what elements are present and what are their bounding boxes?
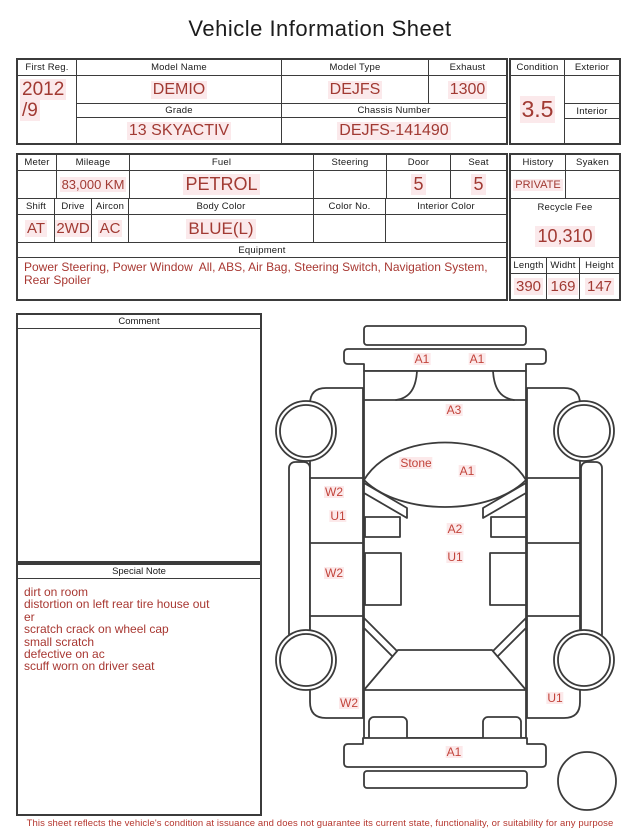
vehicle-information-sheet: Vehicle Information Sheet First Reg. 201…	[0, 0, 640, 835]
field-history: History PRIVATE	[511, 155, 566, 198]
left-sill	[289, 462, 310, 640]
mileage-label: Mileage	[57, 155, 129, 171]
field-equipment: Equipment Power Steering, Power Window A…	[18, 243, 506, 299]
recycle-fee-value: 10,310	[511, 215, 619, 257]
condition-value: 3.5	[511, 76, 564, 143]
model-name-value: DEMIO	[77, 76, 281, 103]
front-bumper	[344, 349, 546, 371]
shift-value: AT	[18, 215, 54, 242]
left-front-door-inner	[365, 517, 400, 537]
field-color-no: Color No.	[314, 199, 386, 242]
disclaimer-text: This sheet reflects the vehicle's condit…	[0, 818, 640, 829]
right-rear-door-inner	[490, 553, 526, 605]
field-meter: Meter	[18, 155, 57, 198]
field-fuel: Fuel PETROL	[130, 155, 314, 198]
body-color-value: BLUE(L)	[129, 215, 313, 242]
color-no-value	[314, 215, 385, 242]
chassis-number-value: DEJFS-141490	[282, 118, 506, 143]
rear-right-wheel	[554, 630, 614, 690]
exhaust-label: Exhaust	[429, 60, 506, 76]
seat-value: 5	[451, 171, 506, 198]
field-width: Widht 169	[547, 258, 580, 299]
right-front-door-inner	[491, 517, 526, 537]
model-info-row1: Model Name DEMIO Model Type DEJFS Exhaus…	[77, 60, 506, 103]
right-sill	[581, 462, 602, 640]
page-title: Vehicle Information Sheet	[0, 16, 640, 42]
width-label: Widht	[547, 258, 579, 274]
chassis-number-label: Chassis Number	[282, 104, 506, 118]
damage-label: A2	[447, 523, 464, 535]
comment-label: Comment	[18, 315, 260, 329]
height-label: Height	[580, 258, 619, 274]
model-type-value: DEJFS	[282, 76, 428, 103]
special-note-label: Special Note	[18, 565, 260, 579]
field-door: Door 5	[387, 155, 451, 198]
field-shift: Shift AT	[18, 199, 55, 242]
dimensions-row: Length 390 Widht 169 Height 147	[511, 258, 619, 299]
field-syaken: Syaken	[566, 155, 619, 198]
damage-label: A1	[469, 353, 486, 365]
model-info-main: Model Name DEMIO Model Type DEJFS Exhaus…	[77, 60, 506, 143]
model-name-label: Model Name	[77, 60, 281, 76]
damage-label: W2	[324, 486, 344, 498]
grade-value: 13 SKYACTIV	[77, 118, 281, 143]
comment-box: Comment	[16, 313, 262, 563]
interior-value	[565, 119, 619, 143]
left-rear-door-inner	[365, 553, 401, 605]
field-recycle-fee: Recycle Fee 10,310	[511, 199, 619, 258]
first-reg-year: 2012	[20, 79, 66, 100]
history-value: PRIVATE	[511, 171, 565, 198]
damage-label: A3	[446, 404, 463, 416]
grade-label: Grade	[77, 104, 281, 118]
history-fee-table: History PRIVATE Syaken Recycle Fee 10,31…	[509, 153, 621, 301]
exterior-value	[565, 76, 619, 103]
note-line: scuff worn on driver seat	[24, 660, 256, 672]
front-right-wheel	[554, 401, 614, 461]
exhaust-value: 1300	[429, 76, 506, 103]
damage-label: A1	[459, 465, 476, 477]
door-value: 5	[387, 171, 450, 198]
field-seat: Seat 5	[451, 155, 506, 198]
field-length: Length 390	[511, 258, 547, 299]
aircon-value: AC	[92, 215, 128, 242]
fuel-value: PETROL	[130, 171, 313, 198]
field-steering: Steering	[314, 155, 387, 198]
note-line: distortion on left rear tire house out	[24, 598, 256, 610]
damage-label: U1	[446, 551, 463, 563]
damage-label: A1	[414, 353, 431, 365]
damage-label: U1	[546, 692, 563, 704]
syaken-label: Syaken	[566, 155, 619, 171]
model-type-label: Model Type	[282, 60, 428, 76]
field-body-color: Body Color BLUE(L)	[129, 199, 314, 242]
length-value: 390	[511, 274, 546, 299]
body-color-label: Body Color	[129, 199, 313, 215]
equipment-label: Equipment	[18, 243, 506, 258]
field-grade: Grade 13 SKYACTIV	[77, 104, 282, 143]
height-value: 147	[580, 274, 619, 299]
condition-table: Condition 3.5 Exterior Interior	[509, 58, 621, 145]
door-label: Door	[387, 155, 450, 171]
damage-label: W2	[339, 697, 359, 709]
rear-bottom-strip	[364, 771, 527, 788]
field-model-type: Model Type DEJFS	[282, 60, 429, 103]
first-reg-month: /9	[20, 100, 40, 121]
history-label: History	[511, 155, 565, 171]
steering-label: Steering	[314, 155, 386, 171]
field-height: Height 147	[580, 258, 619, 299]
model-info-table: First Reg. 2012 /9 Model Name DEMIO Mode…	[16, 58, 508, 145]
comment-body	[18, 329, 260, 561]
drive-value: 2WD	[55, 215, 91, 242]
first-reg-value: 2012 /9	[18, 76, 76, 143]
interior-color-label: Interior Color	[386, 199, 506, 215]
rear-left-wheel	[276, 630, 336, 690]
steering-value	[314, 171, 386, 198]
field-chassis-number: Chassis Number DEJFS-141490	[282, 104, 506, 143]
special-note-box: Special Note dirt on room distortion on …	[16, 563, 262, 816]
seat-label: Seat	[451, 155, 506, 171]
field-model-name: Model Name DEMIO	[77, 60, 282, 103]
equipment-value: Power Steering, Power Window All, ABS, A…	[18, 258, 506, 299]
field-condition: Condition 3.5	[511, 60, 565, 143]
meter-label: Meter	[18, 155, 56, 171]
fuel-label: Fuel	[130, 155, 313, 171]
exterior-interior-column: Exterior Interior	[565, 60, 619, 143]
front-top-strip	[364, 326, 526, 345]
field-exhaust: Exhaust 1300	[429, 60, 506, 103]
syaken-value	[566, 171, 619, 198]
color-no-label: Color No.	[314, 199, 385, 215]
recycle-fee-label: Recycle Fee	[511, 199, 619, 215]
spec-row2: Shift AT Drive 2WD Aircon AC Body Color …	[18, 199, 506, 243]
mileage-value: 83,000 KM	[57, 171, 129, 198]
field-first-reg: First Reg. 2012 /9	[18, 60, 77, 143]
condition-label: Condition	[511, 60, 564, 76]
history-row: History PRIVATE Syaken	[511, 155, 619, 199]
spec-row1: Meter Mileage 83,000 KM Fuel PETROL Stee…	[18, 155, 506, 199]
meter-value	[18, 171, 56, 198]
damage-label: Stone	[399, 457, 432, 469]
drive-label: Drive	[55, 199, 91, 215]
length-label: Length	[511, 258, 546, 274]
exterior-label: Exterior	[565, 60, 619, 76]
spare-tire	[558, 752, 616, 810]
special-note-body: dirt on room distortion on left rear tir…	[18, 579, 260, 673]
damage-label: W2	[324, 567, 344, 579]
field-mileage: Mileage 83,000 KM	[57, 155, 130, 198]
damage-label: U1	[329, 510, 346, 522]
spec-table: Meter Mileage 83,000 KM Fuel PETROL Stee…	[16, 153, 508, 301]
first-reg-label: First Reg.	[18, 60, 76, 76]
field-interior-color: Interior Color	[386, 199, 506, 242]
aircon-label: Aircon	[92, 199, 128, 215]
width-value: 169	[547, 274, 579, 299]
model-info-row2: Grade 13 SKYACTIV Chassis Number DEJFS-1…	[77, 103, 506, 143]
front-left-wheel	[276, 401, 336, 461]
interior-label: Interior	[565, 103, 619, 119]
interior-color-value	[386, 215, 506, 242]
note-line: scratch crack on wheel cap	[24, 623, 256, 635]
car-damage-diagram: A1 A1 A3 Stone A1 W2 U1 A2 U1 W2 W2 U1 A…	[270, 310, 640, 815]
shift-label: Shift	[18, 199, 54, 215]
damage-label: A1	[446, 746, 463, 758]
field-aircon: Aircon AC	[92, 199, 129, 242]
field-drive: Drive 2WD	[55, 199, 92, 242]
